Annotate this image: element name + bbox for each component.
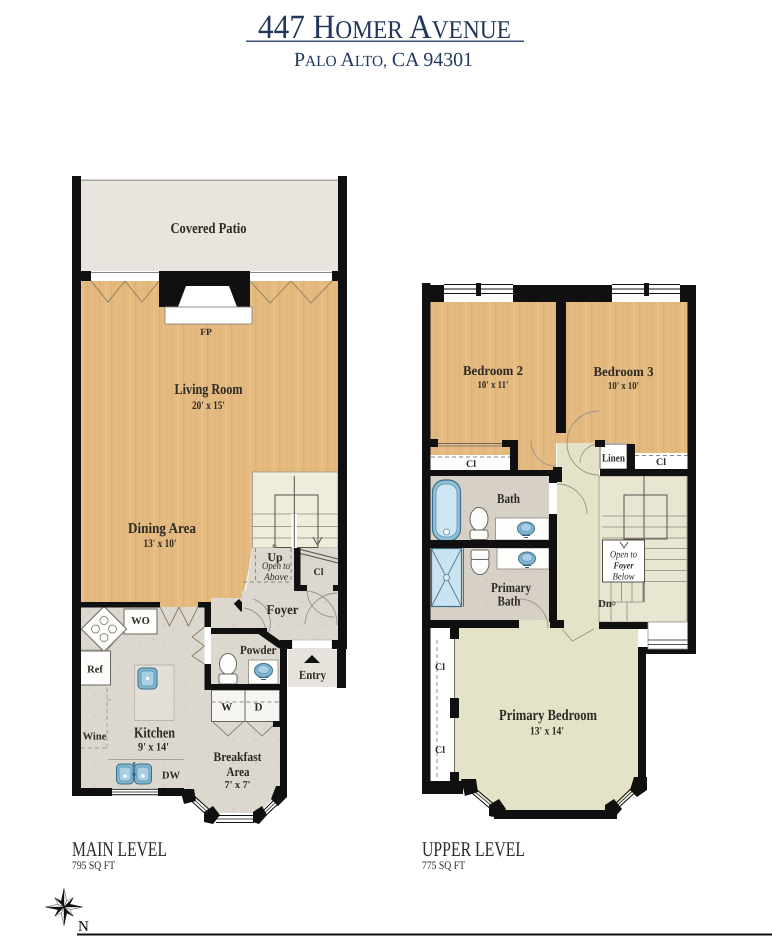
svg-text:13' x 10': 13' x 10' [144, 538, 177, 550]
svg-text:Cl: Cl [314, 567, 324, 578]
svg-text:Primary Bedroom: Primary Bedroom [499, 707, 597, 724]
svg-text:Covered Patio: Covered Patio [171, 221, 247, 237]
svg-text:Cl: Cl [435, 662, 445, 673]
svg-text:PALO ALTO, CA 94301: PALO ALTO, CA 94301 [294, 49, 473, 71]
svg-text:Open to: Open to [610, 550, 637, 561]
svg-text:Above: Above [263, 572, 288, 583]
svg-text:WO: WO [131, 616, 150, 627]
svg-text:UPPER LEVEL: UPPER LEVEL [422, 837, 525, 861]
svg-text:7' x 7': 7' x 7' [225, 780, 251, 791]
svg-text:Cl: Cl [435, 745, 445, 756]
svg-text:Bath: Bath [497, 491, 520, 506]
svg-text:13' x 14': 13' x 14' [530, 726, 564, 738]
svg-text:Area: Area [227, 764, 250, 779]
svg-text:20' x 15': 20' x 15' [192, 400, 225, 412]
svg-text:Open to: Open to [262, 561, 290, 572]
svg-text:Powder: Powder [240, 643, 277, 657]
svg-text:Ref: Ref [87, 665, 103, 676]
svg-text:Entry: Entry [299, 668, 327, 682]
svg-text:MAIN LEVEL: MAIN LEVEL [72, 837, 167, 861]
svg-text:Living Room: Living Room [175, 382, 243, 398]
svg-text:Bedroom 3: Bedroom 3 [594, 364, 654, 379]
svg-text:Breakfast: Breakfast [214, 749, 263, 764]
svg-text:N: N [78, 919, 89, 935]
svg-text:DW: DW [162, 771, 181, 782]
svg-text:Dn: Dn [598, 599, 612, 610]
svg-text:Foyer: Foyer [613, 562, 634, 572]
svg-text:Below: Below [613, 572, 635, 583]
svg-text:FP: FP [200, 328, 212, 338]
svg-text:D: D [255, 702, 263, 714]
svg-text:Wine: Wine [83, 732, 107, 743]
svg-text:447 HOMER AVENUE: 447 HOMER AVENUE [258, 9, 511, 46]
svg-text:Linen: Linen [602, 453, 625, 465]
svg-text:Dining Area: Dining Area [128, 521, 196, 537]
svg-text:9' x 14': 9' x 14' [138, 742, 169, 754]
svg-text:Foyer: Foyer [267, 602, 299, 617]
svg-text:10' x 11': 10' x 11' [478, 380, 509, 391]
svg-text:10' x 10': 10' x 10' [608, 381, 639, 392]
svg-text:Cl: Cl [466, 459, 476, 470]
svg-text:Bedroom 2: Bedroom 2 [463, 363, 523, 378]
svg-text:Kitchen: Kitchen [134, 726, 176, 742]
svg-text:775 SQ FT: 775 SQ FT [422, 860, 465, 872]
svg-text:Cl: Cl [656, 457, 666, 468]
svg-text:W: W [221, 702, 232, 714]
svg-text:Bath: Bath [498, 594, 521, 609]
svg-text:795 SQ FT: 795 SQ FT [72, 860, 115, 872]
